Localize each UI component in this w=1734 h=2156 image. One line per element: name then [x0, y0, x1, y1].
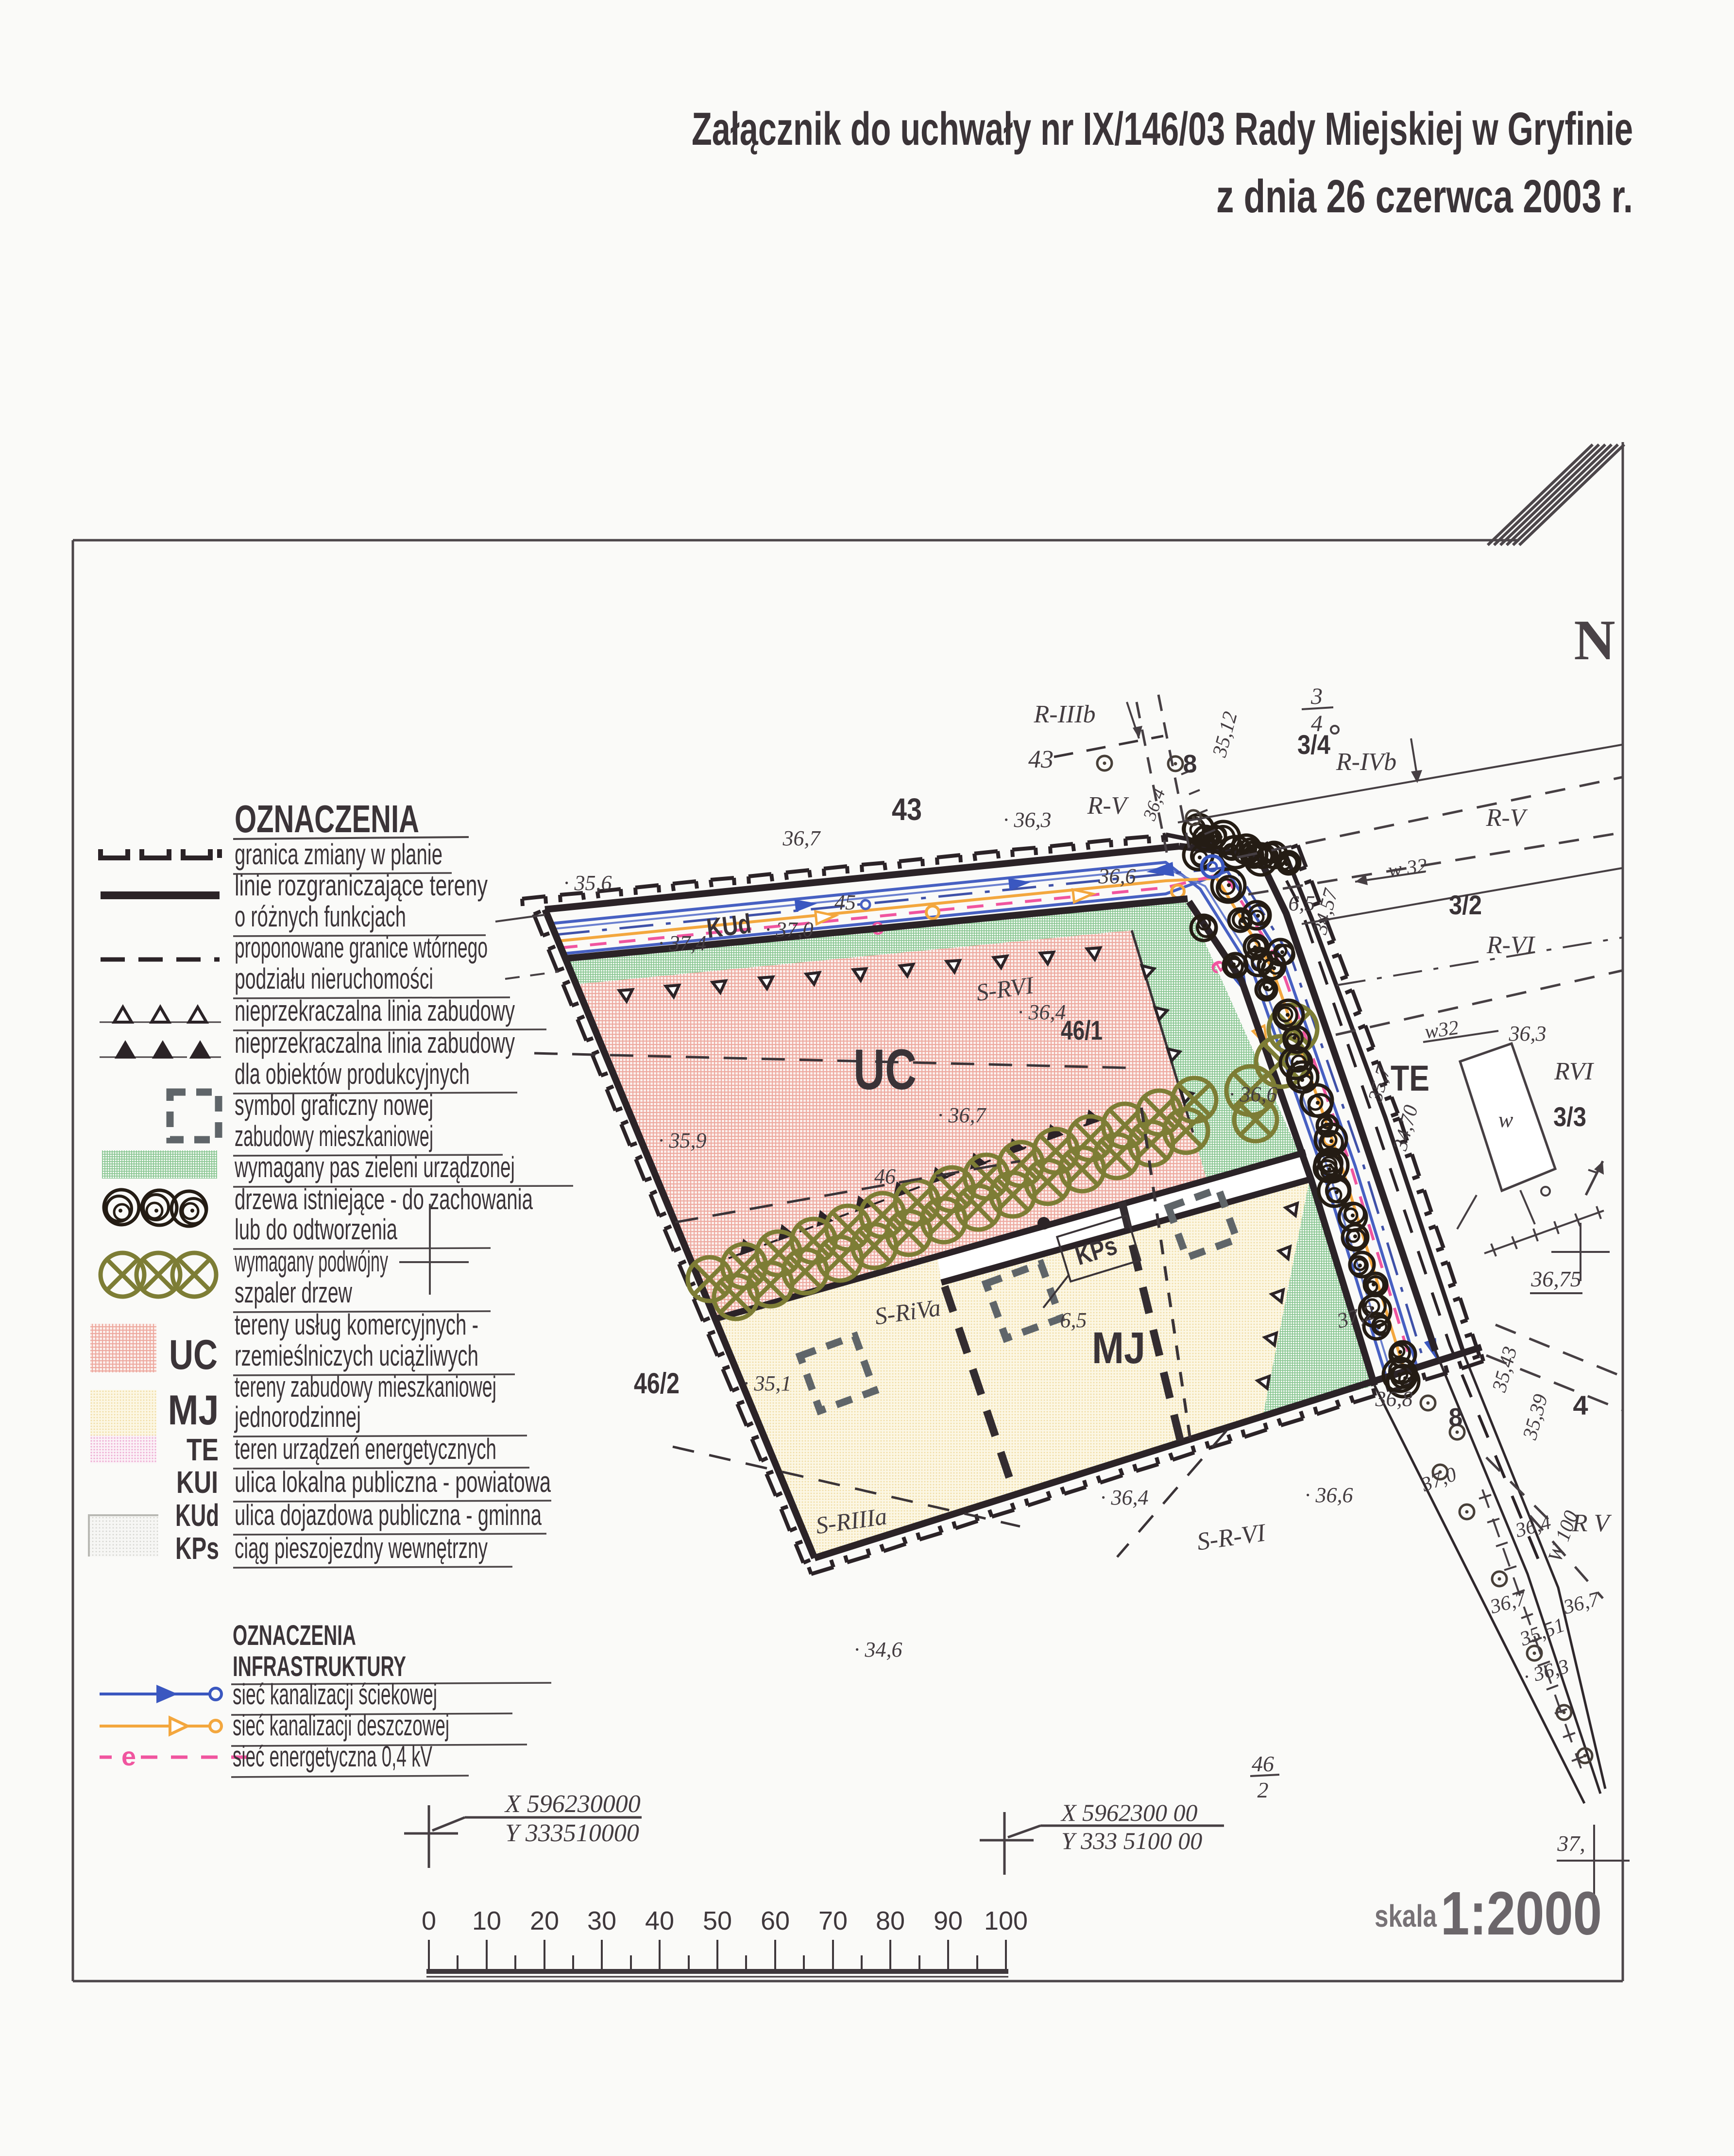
svg-text:skala: skala	[1375, 1899, 1437, 1934]
svg-text:MJ: MJ	[1092, 1323, 1145, 1373]
svg-text:nieprzekraczalna linia zabudow: nieprzekraczalna linia zabudowy	[235, 994, 515, 1027]
svg-text:43: 43	[892, 792, 922, 827]
svg-text:TE: TE	[187, 1432, 219, 1467]
svg-text:lub do odtworzenia: lub do odtworzenia	[235, 1213, 397, 1246]
svg-text:46/2: 46/2	[634, 1367, 680, 1400]
svg-text:36,3: 36,3	[1509, 1022, 1547, 1045]
svg-text:e: e	[121, 1742, 136, 1771]
svg-text:szpaler drzew: szpaler drzew	[235, 1276, 352, 1309]
svg-text:ulica lokalna publiczna - powi: ulica lokalna publiczna - powiatowa	[235, 1466, 551, 1498]
svg-text:Załącznik do uchwały nr IX/146: Załącznik do uchwały nr IX/146/03 Rady M…	[692, 103, 1633, 155]
svg-text:1:2000: 1:2000	[1441, 1879, 1602, 1948]
svg-text:0: 0	[422, 1906, 436, 1935]
svg-text:KUd: KUd	[705, 908, 753, 944]
svg-text:10: 10	[472, 1906, 501, 1935]
svg-text:R-V: R-V	[1486, 804, 1528, 832]
svg-text:3: 3	[1310, 684, 1323, 709]
svg-text:· 36,7: · 36,7	[938, 1103, 987, 1127]
svg-text:OZNACZENIA: OZNACZENIA	[233, 1620, 356, 1651]
svg-text:6,5: 6,5	[1289, 891, 1315, 915]
svg-text:3/4: 3/4	[1297, 729, 1330, 760]
svg-text:30: 30	[587, 1906, 616, 1935]
svg-text:TE: TE	[1391, 1058, 1429, 1098]
svg-text:20: 20	[530, 1906, 559, 1935]
svg-text:3/2: 3/2	[1449, 890, 1482, 920]
svg-text:80: 80	[876, 1906, 905, 1935]
svg-text:3/3: 3/3	[1553, 1101, 1586, 1132]
svg-text:granica zmiany w planie: granica zmiany w planie	[235, 838, 442, 871]
svg-text:o różnych funkcjach: o różnych funkcjach	[235, 900, 406, 933]
svg-text:z dnia 26 czerwca 2003 r.: z dnia 26 czerwca 2003 r.	[1216, 171, 1633, 222]
svg-text:wymagany podwójny: wymagany podwójny	[234, 1245, 388, 1278]
svg-text:100: 100	[984, 1906, 1028, 1935]
svg-text:· 35,1: · 35,1	[744, 1371, 792, 1395]
svg-text:50: 50	[703, 1906, 732, 1935]
svg-text:· 34,6: · 34,6	[854, 1638, 902, 1661]
svg-text:podziału nieruchomości: podziału nieruchomości	[235, 962, 433, 995]
svg-text:UC: UC	[853, 1038, 917, 1102]
svg-text:37,: 37,	[1557, 1831, 1585, 1856]
svg-text:dla obiektów produkcyjnych: dla obiektów produkcyjnych	[235, 1058, 470, 1090]
svg-text:ciąg pieszojezdny wewnętrzny: ciąg pieszojezdny wewnętrzny	[235, 1532, 488, 1564]
svg-text:· 35,9: · 35,9	[659, 1129, 707, 1152]
svg-text:R-V: R-V	[1087, 792, 1129, 820]
svg-text:45: 45	[834, 890, 856, 914]
svg-text:· 37,0: · 37,0	[765, 918, 814, 941]
svg-text:rzemieślniczych uciążliwych: rzemieślniczych uciążliwych	[235, 1339, 478, 1372]
svg-text:nieprzekraczalna linia zabudow: nieprzekraczalna linia zabudowy	[235, 1027, 515, 1059]
svg-text:sieć energetyczna 0,4 kV: sieć energetyczna 0,4 kV	[233, 1740, 432, 1773]
svg-text:90: 90	[934, 1906, 963, 1935]
svg-text:46/1: 46/1	[1061, 1015, 1103, 1045]
svg-text:· 36,6: · 36,6	[1305, 1483, 1353, 1507]
svg-text:70: 70	[818, 1906, 848, 1935]
svg-text:w: w	[1498, 1107, 1513, 1132]
svg-text:UC: UC	[169, 1332, 218, 1378]
svg-text:KPs: KPs	[175, 1531, 219, 1566]
svg-text:KUd: KUd	[175, 1498, 219, 1533]
svg-text:36,6: 36,6	[1098, 864, 1136, 888]
svg-text:8: 8	[1449, 1403, 1463, 1432]
svg-text:OZNACZENIA: OZNACZENIA	[235, 797, 419, 840]
svg-text:R-VI: R-VI	[1486, 931, 1536, 959]
svg-text:8: 8	[1183, 750, 1197, 778]
svg-text:X 5962300 00: X 5962300 00	[1060, 1799, 1198, 1826]
svg-text:sieć kanalizacji ściekowej: sieć kanalizacji ściekowej	[233, 1678, 437, 1711]
svg-text:60: 60	[761, 1906, 790, 1935]
svg-text:36,8: 36,8	[1375, 1387, 1413, 1411]
svg-text:KUI: KUI	[176, 1465, 218, 1500]
svg-text:Y 333 5100 00: Y 333 5100 00	[1061, 1827, 1202, 1854]
svg-text:43: 43	[1028, 746, 1054, 773]
svg-text:40: 40	[645, 1906, 674, 1935]
svg-text:· 36,4: · 36,4	[1018, 1000, 1066, 1024]
svg-text:· 36,3: · 36,3	[1003, 808, 1052, 832]
svg-text:6,5: 6,5	[1060, 1308, 1087, 1332]
svg-text:w32: w32	[1423, 1016, 1460, 1043]
svg-text:· 35,6: · 35,6	[564, 871, 612, 895]
svg-text:drzewa istniejące - do zachowa: drzewa istniejące - do zachowania	[235, 1183, 533, 1215]
svg-text:· 36,4: · 36,4	[1101, 1486, 1149, 1509]
svg-text:X 596230000: X 596230000	[504, 1790, 641, 1818]
svg-text:tereny usług komercyjnych -: tereny usług komercyjnych -	[235, 1308, 478, 1341]
svg-text:N: N	[1574, 608, 1615, 672]
svg-text:ulica dojazdowa publiczna - gm: ulica dojazdowa publiczna - gminna	[235, 1499, 542, 1531]
svg-text:· 36,6: · 36,6	[1229, 1082, 1277, 1106]
svg-text:sieć kanalizacji deszczowej: sieć kanalizacji deszczowej	[233, 1709, 449, 1742]
svg-text:MJ: MJ	[168, 1387, 219, 1434]
svg-text:jednorodzinnej: jednorodzinnej	[234, 1401, 361, 1433]
svg-text:4: 4	[1573, 1390, 1588, 1420]
svg-text:R-IIIb: R-IIIb	[1033, 701, 1095, 728]
svg-text:46: 46	[1252, 1751, 1274, 1776]
svg-text:36,7: 36,7	[782, 826, 821, 850]
svg-text:46: 46	[874, 1164, 896, 1188]
svg-text:RVI: RVI	[1554, 1058, 1595, 1085]
svg-text:· 37,4: · 37,4	[659, 931, 707, 955]
svg-text:teren urządzeń energetycznych: teren urządzeń energetycznych	[235, 1433, 496, 1465]
svg-text:Y 333510000: Y 333510000	[505, 1819, 639, 1847]
svg-text:36,75: 36,75	[1530, 1266, 1581, 1291]
svg-text:2: 2	[1258, 1778, 1269, 1802]
svg-text:R-IVb: R-IVb	[1336, 748, 1396, 776]
svg-text:zabudowy mieszkaniowej: zabudowy mieszkaniowej	[235, 1120, 433, 1152]
